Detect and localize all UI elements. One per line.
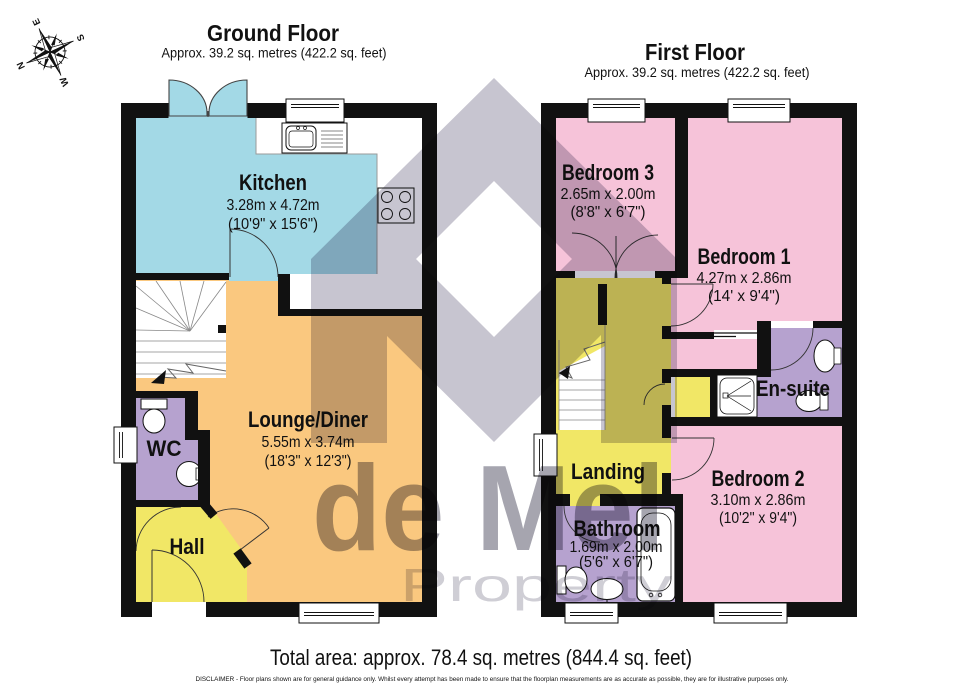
svg-text:de Mel: de Mel (312, 440, 665, 576)
svg-text:Hall: Hall (170, 534, 205, 559)
svg-text:WC: WC (147, 436, 182, 461)
svg-text:Total area: approx. 78.4 sq. m: Total area: approx. 78.4 sq. metres (844… (270, 645, 692, 670)
svg-text:3.10m x 2.86m: 3.10m x 2.86m (711, 492, 806, 509)
svg-text:(10'2" x 9'4"): (10'2" x 9'4") (719, 510, 797, 527)
svg-text:Ground Floor: Ground Floor (207, 20, 339, 46)
svg-text:(10'9" x 15'6"): (10'9" x 15'6") (228, 216, 318, 233)
svg-text:3.28m x 4.72m: 3.28m x 4.72m (227, 197, 320, 214)
svg-text:Bedroom 2: Bedroom 2 (712, 466, 805, 491)
svg-text:Kitchen: Kitchen (239, 170, 307, 195)
svg-text:Approx. 39.2 sq. metres (422.2: Approx. 39.2 sq. metres (422.2 sq. feet) (585, 65, 810, 80)
svg-text:DISCLAIMER - Floor plans show: DISCLAIMER - Floor plans shown are for g… (196, 676, 789, 683)
svg-text:4.27m x 2.86m: 4.27m x 2.86m (697, 270, 792, 287)
svg-text:(14' x 9'4"): (14' x 9'4") (708, 288, 780, 305)
svg-text:Approx. 39.2 sq. metres (422.2: Approx. 39.2 sq. metres (422.2 sq. feet) (162, 46, 387, 61)
svg-text:En-suite: En-suite (756, 376, 830, 401)
svg-text:First Floor: First Floor (645, 39, 745, 65)
svg-text:Property: Property (400, 559, 672, 611)
svg-text:Bedroom 1: Bedroom 1 (698, 244, 791, 269)
